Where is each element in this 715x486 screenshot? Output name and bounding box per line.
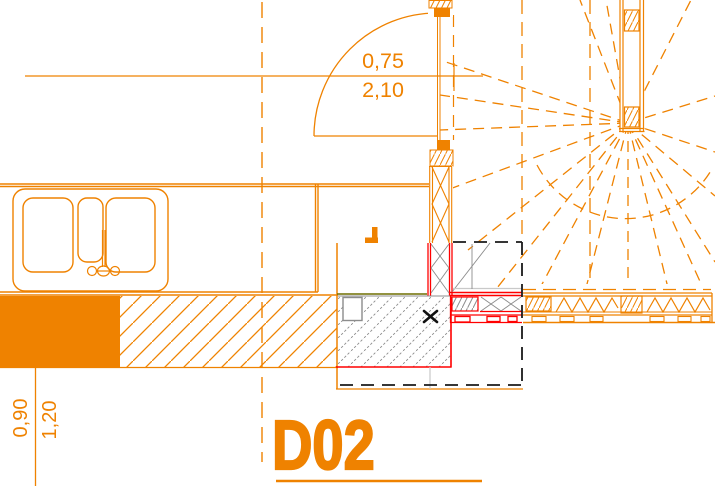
mullion-window bbox=[619, 0, 645, 132]
dimension-vertical: 0,90 1,20 bbox=[10, 368, 61, 486]
insulation-block-red bbox=[452, 297, 478, 311]
mullion-cross-block bbox=[621, 296, 642, 313]
dim-door-height-label: 2,10 bbox=[362, 78, 404, 102]
sink-counter bbox=[0, 184, 429, 292]
insulation-block-orange bbox=[526, 297, 551, 311]
switch-symbol bbox=[365, 227, 378, 243]
mullion-frame-block-top bbox=[625, 10, 640, 31]
door-swing-arc-dashed bbox=[537, 165, 712, 219]
cad-drawing-viewport[interactable]: 0,75 2,10 bbox=[0, 0, 715, 486]
cad-canvas[interactable]: 0,75 2,10 bbox=[0, 0, 715, 486]
wall-hatched bbox=[120, 296, 337, 367]
dim-sill-label: 0,90 bbox=[10, 399, 32, 438]
sink-bowl-middle bbox=[78, 198, 103, 262]
ray-fan bbox=[440, 0, 715, 288]
dim-door-width-label: 0,75 bbox=[362, 49, 404, 73]
sink-bowl-right bbox=[106, 198, 155, 272]
sink-bowl-left bbox=[23, 198, 73, 272]
dimension-horizontal: 0,75 2,10 bbox=[25, 49, 483, 102]
door-post-bottom bbox=[437, 140, 450, 150]
axis-lines bbox=[262, 0, 590, 462]
dim-lintel-label: 1,20 bbox=[39, 401, 61, 440]
detail-code-text: D02 bbox=[272, 407, 375, 484]
mullion-frame-block-bottom bbox=[625, 107, 640, 127]
detail-label: D02 bbox=[272, 407, 482, 484]
door-post-top bbox=[434, 8, 450, 17]
detail-gray-box bbox=[343, 298, 362, 321]
wall-band-right bbox=[523, 284, 715, 326]
door-arc bbox=[314, 13, 437, 136]
wall-solid-fill bbox=[0, 296, 120, 368]
